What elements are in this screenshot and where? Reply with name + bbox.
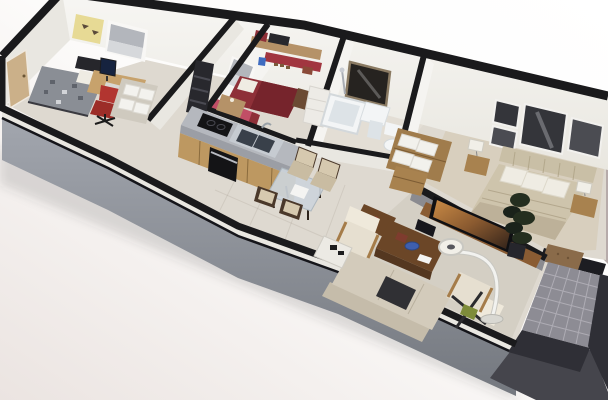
door-handle: [23, 75, 26, 78]
doormat-texture: [567, 257, 569, 259]
computer-monitor: [100, 58, 116, 76]
kids-decal-blue-figure: [258, 57, 266, 66]
duvet-speck: [78, 96, 83, 100]
doormat-texture: [557, 253, 559, 255]
storage-box: [118, 98, 135, 111]
floorplan-canvas: [0, 0, 608, 400]
bedroom-picture-right: [568, 118, 603, 158]
decor-black-item: [330, 245, 337, 250]
bedroom-picture-small-top: [493, 100, 520, 128]
storage-box: [123, 84, 140, 97]
storage-box: [133, 102, 150, 115]
shower-head: [340, 68, 345, 73]
duvet-speck: [72, 84, 77, 88]
arc-lamp-shade-hole: [447, 245, 455, 250]
apartment-floorplan-render: [0, 0, 608, 400]
storage-box: [138, 88, 155, 101]
arc-lamp-base: [481, 315, 503, 324]
plant-foliage: [512, 232, 532, 244]
kids-decal-text: [280, 64, 284, 67]
duvet-speck: [62, 90, 67, 94]
duvet-speck: [44, 90, 48, 94]
duvet-speck: [56, 100, 61, 104]
decor-black-item: [338, 251, 344, 255]
kids-decal-text: [286, 66, 290, 69]
kids-desk-lamp: [230, 98, 234, 102]
blue-bowl: [405, 242, 419, 250]
duvet-speck: [50, 80, 55, 84]
plant-foliage: [510, 193, 530, 207]
kids-decal-text: [274, 63, 278, 66]
